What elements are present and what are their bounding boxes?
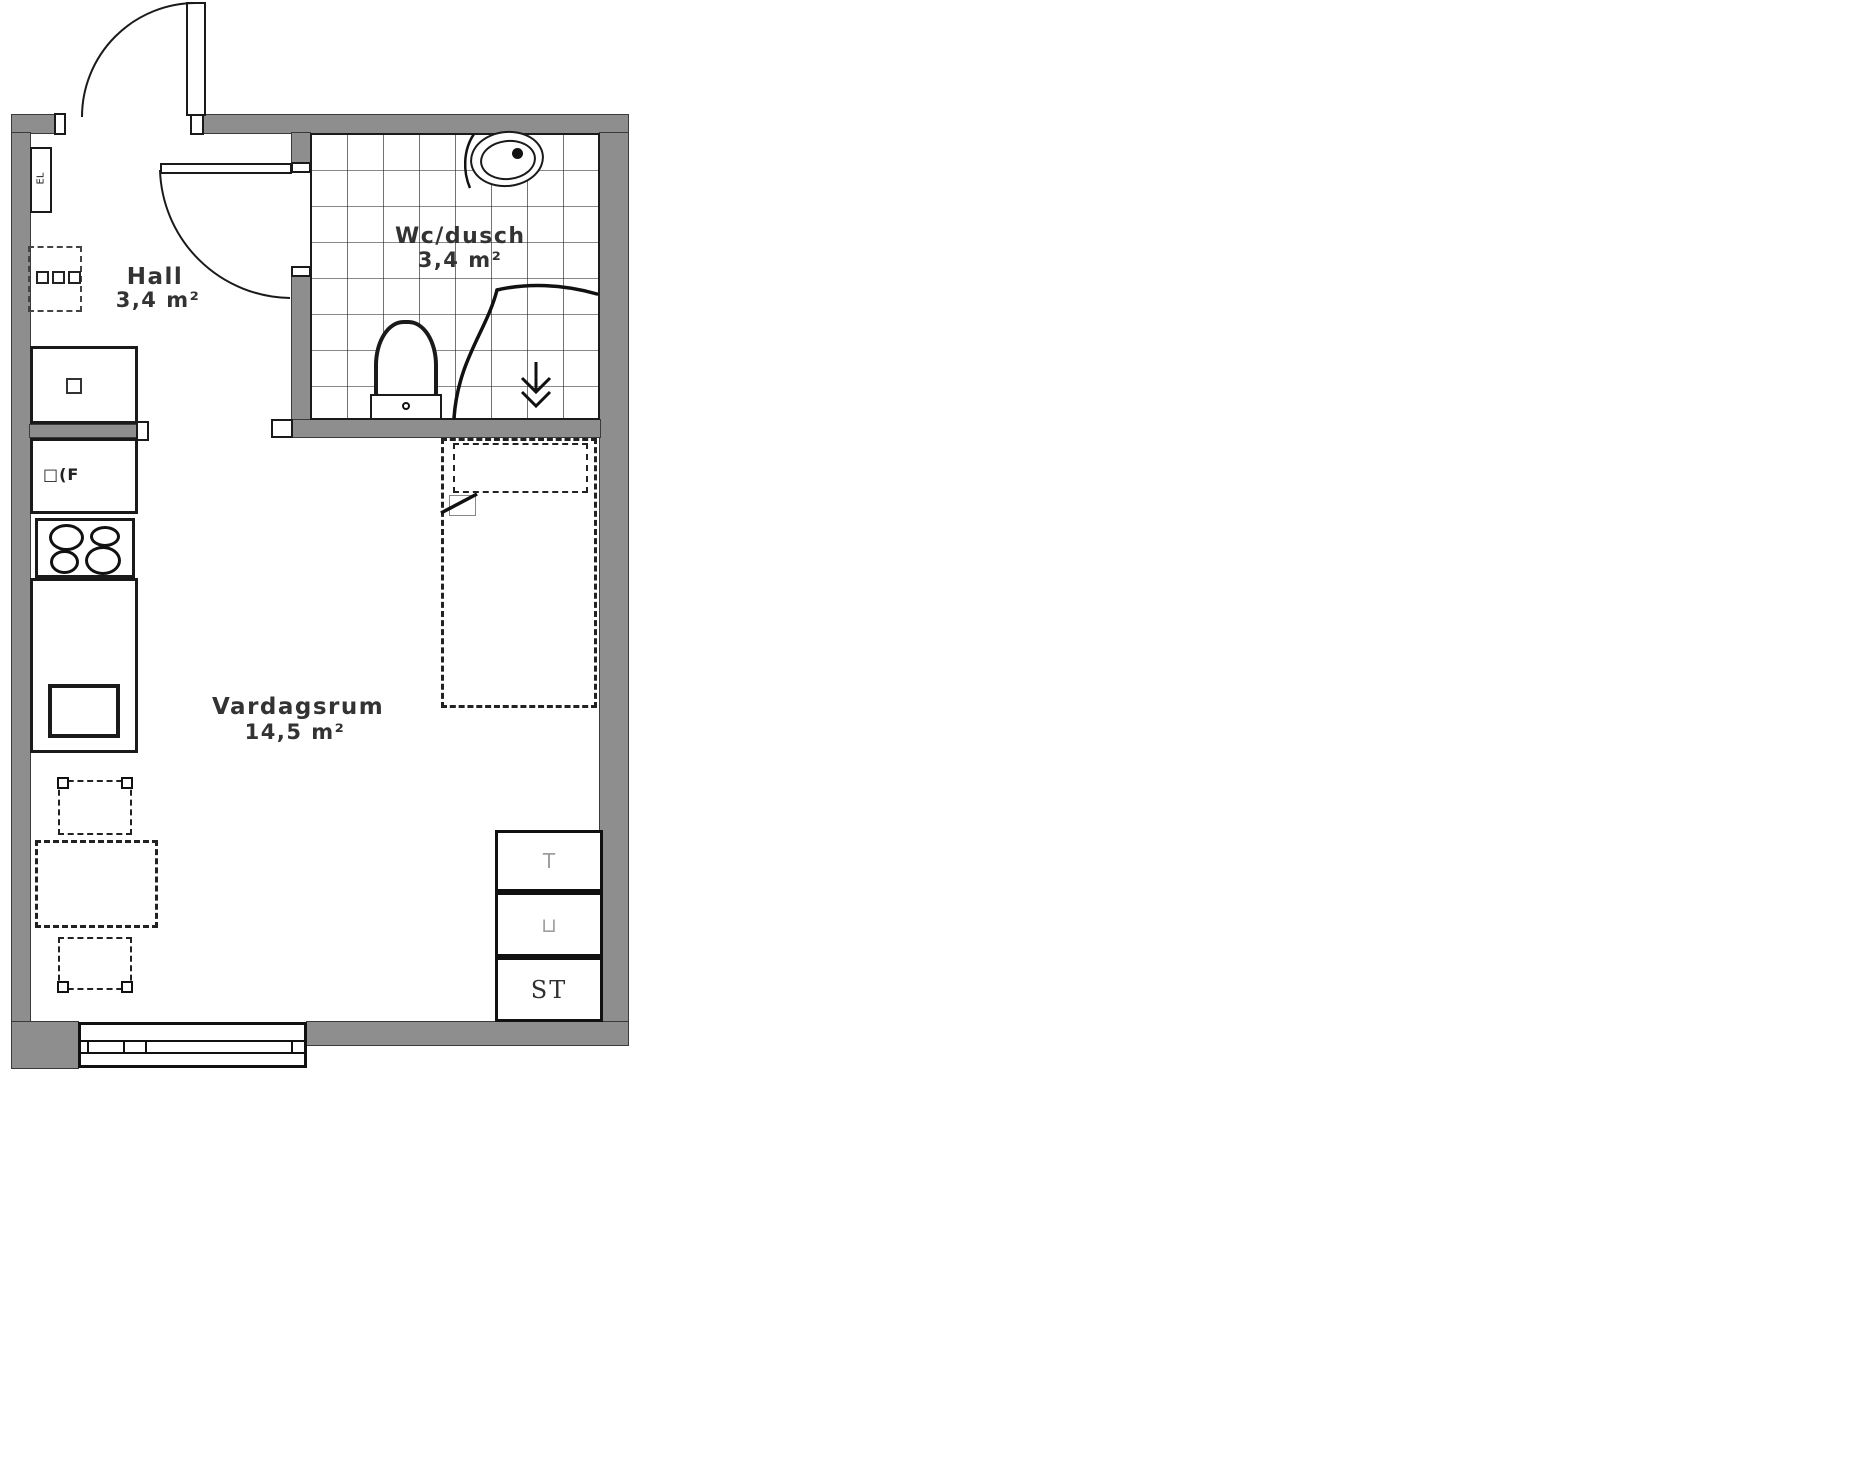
bed-fold-line <box>441 494 477 513</box>
shower-curtain-line <box>454 290 497 418</box>
plan-linework <box>0 0 1871 1473</box>
entrance-door-arc <box>82 3 196 117</box>
bathroom-door-arc <box>160 170 290 298</box>
shower-curtain-line <box>497 285 597 294</box>
shower-drain-icon <box>522 362 550 406</box>
floor-plan: Wc/dusch 3,4 m² EL Hall 3,4 m² □(F Varda… <box>0 0 1871 1473</box>
sink-contour-line <box>465 134 474 188</box>
